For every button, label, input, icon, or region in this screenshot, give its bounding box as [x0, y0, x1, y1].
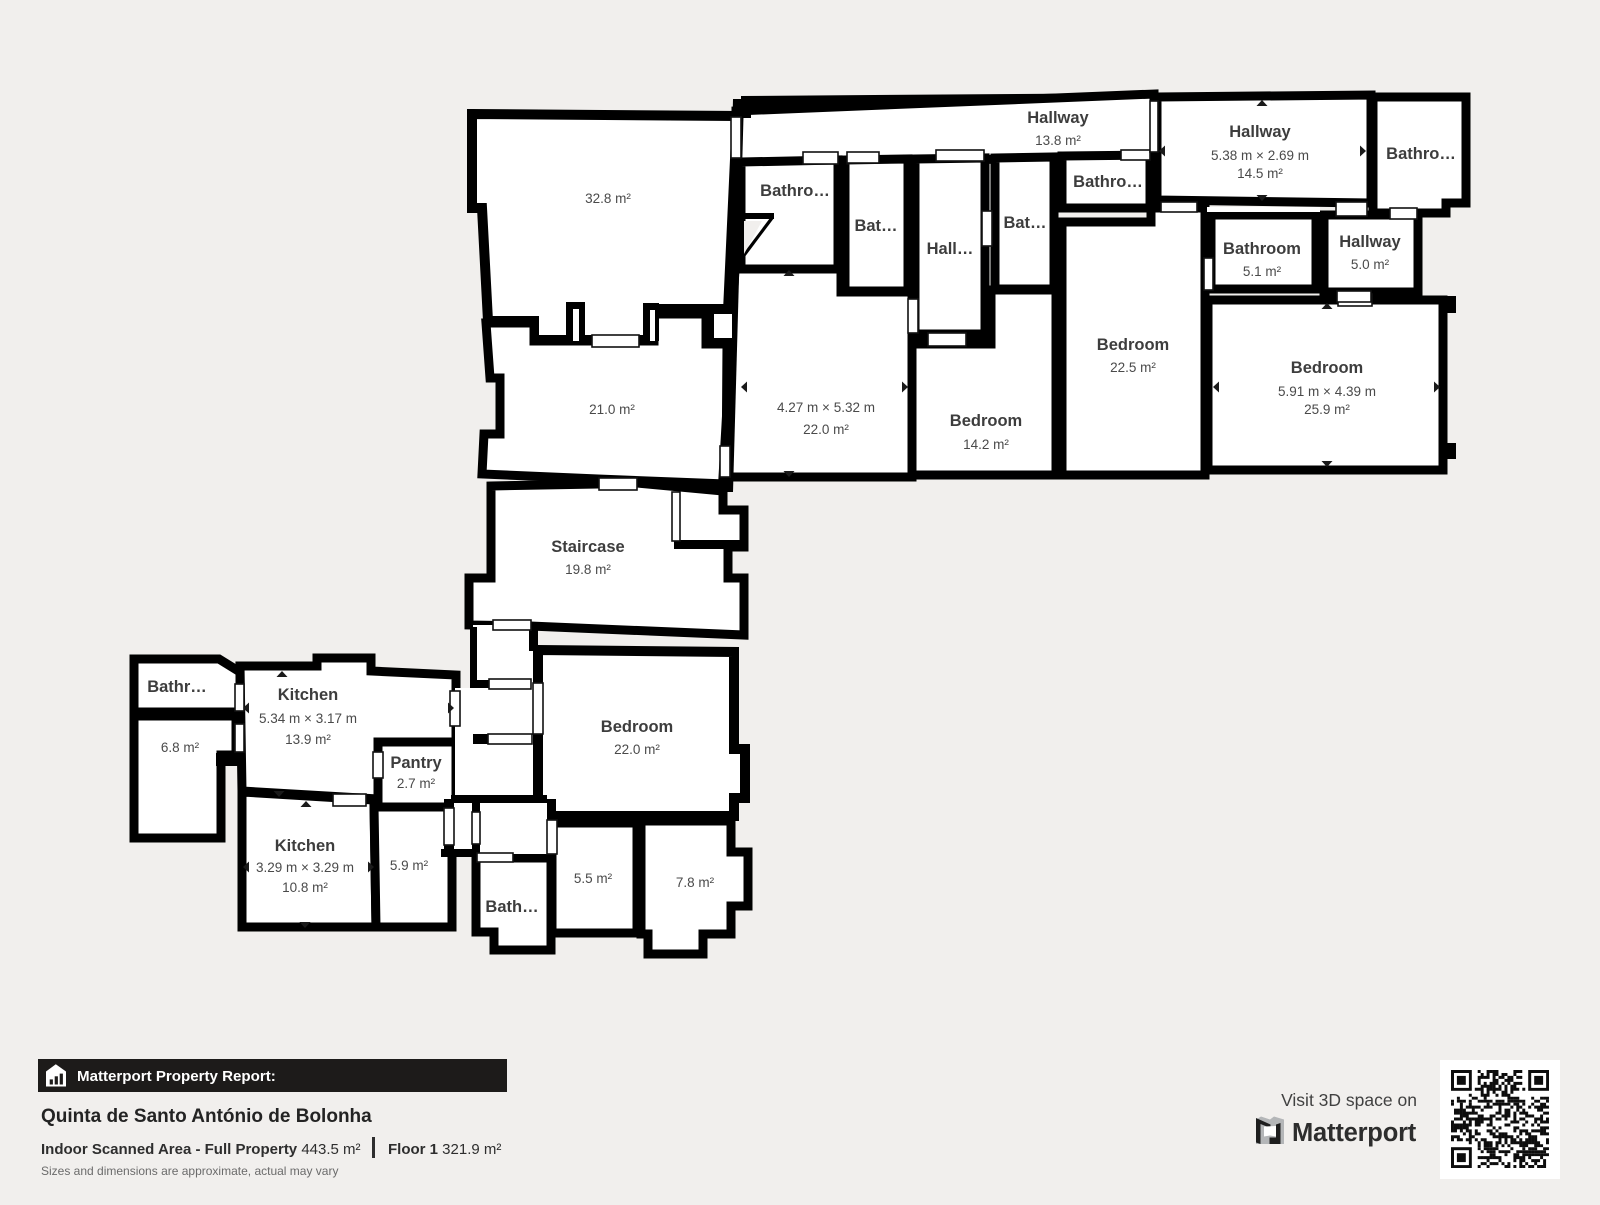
svg-text:Hallway: Hallway: [1027, 109, 1089, 127]
svg-text:Matterport: Matterport: [1292, 1119, 1417, 1147]
svg-text:5.38 m × 2.69 m: 5.38 m × 2.69 m: [1211, 148, 1309, 163]
svg-text:Bathroom: Bathroom: [1223, 240, 1301, 258]
svg-text:5.91 m × 4.39 m: 5.91 m × 4.39 m: [1278, 384, 1376, 399]
svg-text:5.1 m²: 5.1 m²: [1243, 264, 1282, 279]
svg-text:25.9 m²: 25.9 m²: [1304, 402, 1350, 417]
svg-text:Bathro…: Bathro…: [1386, 145, 1456, 163]
svg-text:Pantry: Pantry: [390, 754, 442, 772]
svg-text:22.0 m²: 22.0 m²: [614, 742, 660, 757]
svg-text:5.5 m²: 5.5 m²: [574, 871, 613, 886]
svg-text:13.9 m²: 13.9 m²: [285, 732, 331, 747]
svg-text:Bedroom: Bedroom: [1097, 336, 1169, 354]
svg-text:32.8 m²: 32.8 m²: [585, 191, 631, 206]
svg-text:Indoor Scanned Area - Full Pro: Indoor Scanned Area - Full Property 443.…: [41, 1141, 361, 1158]
svg-text:14.2 m²: 14.2 m²: [963, 437, 1009, 452]
svg-text:Visit 3D space on: Visit 3D space on: [1281, 1090, 1417, 1110]
svg-text:Kitchen: Kitchen: [275, 837, 336, 855]
svg-text:5.0 m²: 5.0 m²: [1351, 257, 1390, 272]
svg-text:4.27 m × 5.32 m: 4.27 m × 5.32 m: [777, 400, 875, 415]
svg-text:5.9 m²: 5.9 m²: [390, 858, 429, 873]
svg-text:Bat…: Bat…: [1003, 214, 1046, 232]
svg-text:10.8 m²: 10.8 m²: [282, 880, 328, 895]
svg-text:Staircase: Staircase: [551, 538, 624, 556]
svg-text:6.8 m²: 6.8 m²: [161, 740, 200, 755]
svg-text:14.5 m²: 14.5 m²: [1237, 166, 1283, 181]
svg-text:Bath…: Bath…: [485, 898, 538, 916]
svg-text:Bathr…: Bathr…: [147, 678, 207, 696]
svg-text:3.29 m × 3.29 m: 3.29 m × 3.29 m: [256, 860, 354, 875]
svg-text:Bedroom: Bedroom: [950, 412, 1022, 430]
svg-text:22.0 m²: 22.0 m²: [803, 422, 849, 437]
svg-text:Hallway: Hallway: [1339, 233, 1401, 251]
svg-text:Kitchen: Kitchen: [278, 686, 339, 704]
svg-text:Bedroom: Bedroom: [1291, 359, 1363, 377]
svg-text:Sizes and dimensions are appro: Sizes and dimensions are approximate, ac…: [41, 1164, 338, 1178]
svg-text:Matterport Property Report:: Matterport Property Report:: [77, 1068, 276, 1085]
svg-text:21.0 m²: 21.0 m²: [589, 402, 635, 417]
svg-text:Bat…: Bat…: [854, 217, 897, 235]
svg-text:7.8 m²: 7.8 m²: [676, 875, 715, 890]
svg-text:Hallway: Hallway: [1229, 123, 1291, 141]
svg-text:Hall…: Hall…: [927, 240, 974, 258]
svg-text:Floor 1 321.9 m²: Floor 1 321.9 m²: [388, 1141, 501, 1158]
svg-text:2.7 m²: 2.7 m²: [397, 776, 436, 791]
svg-text:Quinta de Santo António de Bol: Quinta de Santo António de Bolonha: [41, 1106, 372, 1127]
svg-text:19.8 m²: 19.8 m²: [565, 562, 611, 577]
svg-text:Bathro…: Bathro…: [1073, 173, 1143, 191]
svg-text:22.5 m²: 22.5 m²: [1110, 360, 1156, 375]
svg-text:Bedroom: Bedroom: [601, 718, 673, 736]
svg-text:5.34 m × 3.17 m: 5.34 m × 3.17 m: [259, 711, 357, 726]
svg-text:Bathro…: Bathro…: [760, 182, 830, 200]
svg-text:13.8 m²: 13.8 m²: [1035, 133, 1081, 148]
